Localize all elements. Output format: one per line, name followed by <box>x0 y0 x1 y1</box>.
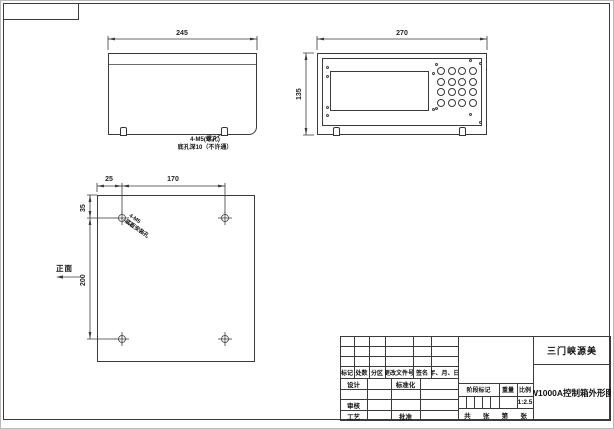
screw-hole-dot <box>479 121 482 124</box>
drawing-sheet: 245 4-M5(螺孔) 底孔深10（不许通） 270 135 25 170 3… <box>0 0 614 429</box>
rev-header-mark: 标记 <box>340 366 354 378</box>
keypad-button <box>448 67 456 75</box>
screw-hole-dot <box>435 63 438 66</box>
design-label: 设计 <box>340 378 367 389</box>
process-label: 工艺 <box>340 410 367 421</box>
side-view-foot-left <box>120 127 127 136</box>
drawing-title: W1000A控制箱外形图 <box>533 364 611 421</box>
scale-value: 1:2.5 <box>517 396 533 408</box>
screw-hole-dot <box>326 114 329 117</box>
rev-header-signature: 签名 <box>413 366 431 378</box>
keypad-button <box>437 78 445 86</box>
bottom-view-outline <box>97 195 255 362</box>
sheet-total-label: 共 <box>464 410 471 420</box>
sheet-no-label: 第 <box>502 410 509 420</box>
rev-header-zone: 分区 <box>369 366 385 378</box>
screw-hole-dot <box>326 75 329 78</box>
scale-label: 比例 <box>517 383 533 396</box>
dim-135: 135 <box>296 88 303 100</box>
side-view-note: 4-M5(螺孔) 底孔深10（不许通） <box>178 137 233 152</box>
side-view-foot-right <box>221 127 228 136</box>
check-label: 审核 <box>340 399 367 410</box>
dim-170: 170 <box>167 176 179 183</box>
side-view-note-line2: 底孔深10（不许通） <box>178 145 233 153</box>
dim-270: 270 <box>396 30 408 37</box>
screw-hole-dot <box>326 106 329 109</box>
keypad-button <box>448 78 456 86</box>
side-view-outline <box>108 53 257 135</box>
side-view-note-line1: 4-M5(螺孔) <box>178 137 233 145</box>
rev-header-count: 处数 <box>354 366 369 378</box>
standardization-label: 标准化 <box>391 378 420 389</box>
screw-hole-dot <box>479 62 482 65</box>
keypad-button <box>469 78 477 86</box>
approve-label: 批准 <box>391 410 420 421</box>
weight-label: 重量 <box>499 383 517 396</box>
screw-hole-dot <box>469 59 472 62</box>
keypad-button <box>448 99 456 107</box>
dim-200: 200 <box>80 274 87 286</box>
dim-245: 245 <box>176 30 188 37</box>
sheet-unit2-label: 张 <box>520 410 527 420</box>
dim-35: 35 <box>80 204 87 212</box>
sheet-unit1-label: 张 <box>483 410 490 420</box>
display-window <box>330 71 429 111</box>
front-view-foot-right <box>459 127 466 136</box>
keypad-button <box>437 67 445 75</box>
front-face-label: 正面 <box>56 263 73 274</box>
screw-hole-dot <box>326 66 329 69</box>
company-name: 三门峡源美 <box>533 336 611 364</box>
front-view-foot-left <box>333 127 340 136</box>
stage-mark-label: 阶段标记 <box>458 383 499 396</box>
screw-hole-dot <box>432 72 435 75</box>
rev-header-date: 年、月、日 <box>431 366 458 378</box>
screw-hole-dot <box>435 107 438 110</box>
dim-25: 25 <box>105 176 113 183</box>
screw-hole-dot <box>469 113 472 116</box>
sheet-count-row: 共 张 第 张 <box>458 408 533 421</box>
rev-header-doc-no: 更改文件号 <box>385 366 413 378</box>
